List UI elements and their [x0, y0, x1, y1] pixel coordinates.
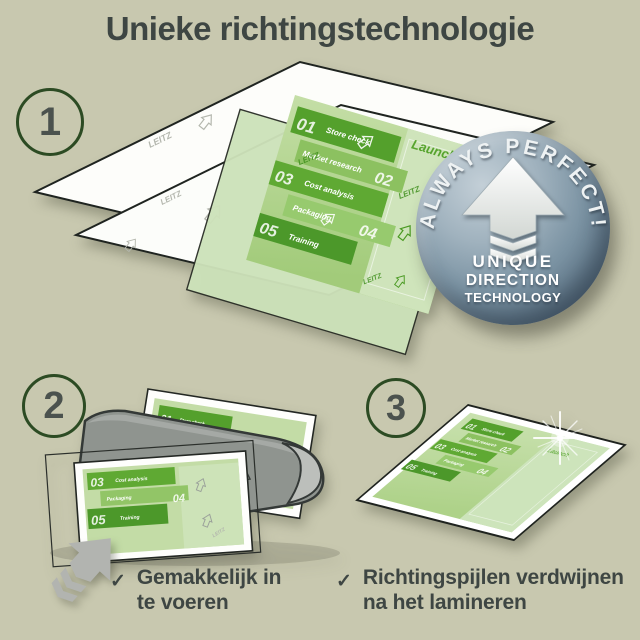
- step-2-number: 2: [22, 374, 86, 438]
- badge-line-unique: UNIQUE: [416, 253, 610, 271]
- step-number-text: 1: [39, 100, 61, 145]
- band-number: 04: [172, 492, 185, 505]
- badge-line-technology: TECHNOLOGY: [416, 291, 610, 305]
- badge-line-direction: DIRECTION: [416, 273, 610, 289]
- badge-caption: UNIQUE DIRECTION TECHNOLOGY: [416, 253, 610, 305]
- check-item-easy-feed: ✓ Gemakkelijk in te voeren: [110, 566, 281, 616]
- check-text-line2: te voeren: [137, 591, 229, 614]
- step-number-text: 2: [43, 385, 64, 428]
- band-number: 03: [90, 475, 105, 490]
- always-perfect-badge: ALWAYS PERFECT! UNIQUE DIRECTION TECHNOL…: [416, 131, 610, 325]
- step-1-number: 1: [16, 88, 84, 156]
- check-text-line2: na het lamineren: [363, 591, 527, 614]
- direction-arrow-icon: [462, 157, 564, 263]
- check-item-arrows-disappear: ✓ Richtingspijlen verdwijnen na het lami…: [336, 566, 624, 616]
- checkmark-icon: ✓: [110, 566, 126, 616]
- laminator-infographic: Unieke richtingstechnologie LEITZ LEITZ …: [0, 0, 640, 640]
- page-title: Unieke richtingstechnologie: [0, 10, 640, 48]
- check-text: Richtingspijlen verdwijnen na het lamine…: [363, 566, 624, 616]
- check-text-line1: Gemakkelijk in: [137, 566, 281, 589]
- checkmark-icon: ✓: [336, 566, 352, 616]
- step-number-text: 3: [386, 387, 406, 429]
- check-text-line1: Richtingspijlen verdwijnen: [363, 566, 624, 589]
- check-text: Gemakkelijk in te voeren: [137, 566, 281, 616]
- step-3-number: 3: [366, 378, 426, 438]
